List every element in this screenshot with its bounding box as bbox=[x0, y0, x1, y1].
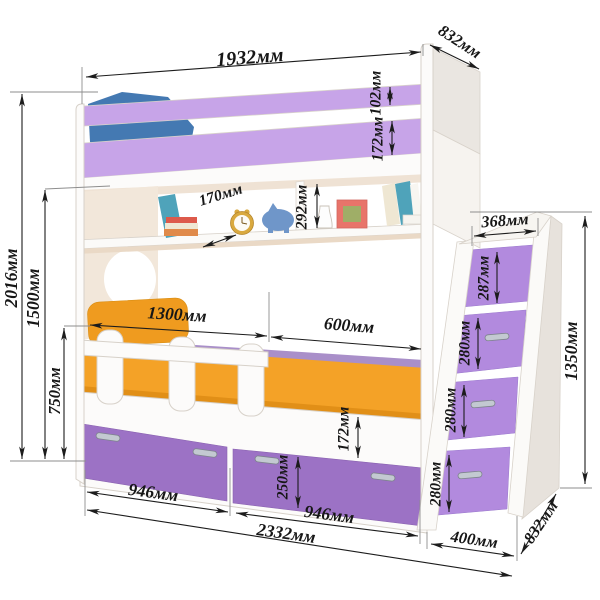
book-stack-bottom bbox=[164, 229, 198, 236]
piggy-bank bbox=[262, 209, 294, 231]
dim-rail-upper: 102мм bbox=[368, 70, 385, 115]
dim-top-width: 1932мм bbox=[215, 44, 284, 71]
piggy-bank-leg-right bbox=[284, 228, 289, 233]
bunk-bed-dimension-diagram: 1932мм 832мм 102мм 172мм 292мм 170мм 201… bbox=[0, 0, 600, 600]
dim-base-gap: 172мм bbox=[336, 406, 353, 451]
dim-lower-height: 750мм bbox=[45, 367, 64, 414]
vase bbox=[317, 206, 332, 228]
dim-overall-height: 2016мм bbox=[1, 249, 21, 309]
dim-step1: 287мм bbox=[476, 255, 493, 301]
dim-rail-lower: 172мм bbox=[370, 116, 387, 161]
dim-step2: 280мм bbox=[457, 320, 474, 366]
bed-left-edge bbox=[76, 104, 84, 484]
dim-drawer-height: 250мм bbox=[275, 454, 292, 500]
dim-underbunk-height: 1500мм bbox=[23, 269, 43, 328]
dim-guard-length: 1300мм bbox=[147, 302, 207, 326]
piggy-bank-leg-left bbox=[268, 228, 273, 233]
dim-step4: 280мм bbox=[428, 461, 445, 507]
dimline-open-length bbox=[271, 337, 421, 349]
diagram-canvas: 1932мм 832мм 102мм 172мм 292мм 170мм 201… bbox=[0, 0, 600, 600]
book-stack-top bbox=[166, 217, 197, 223]
picture-frame-art bbox=[343, 206, 361, 222]
guard-rail bbox=[80, 330, 268, 416]
dim-step-width: 368мм bbox=[480, 209, 530, 231]
dim-step3: 280мм bbox=[443, 387, 460, 433]
dim-overall-length: 2332мм bbox=[255, 519, 317, 547]
book-stack-mid bbox=[165, 223, 198, 229]
dim-shelf-clearance: 292мм bbox=[294, 184, 311, 230]
dim-open-length: 600мм bbox=[323, 313, 375, 337]
dim-stairs-height: 1350мм bbox=[561, 322, 581, 381]
